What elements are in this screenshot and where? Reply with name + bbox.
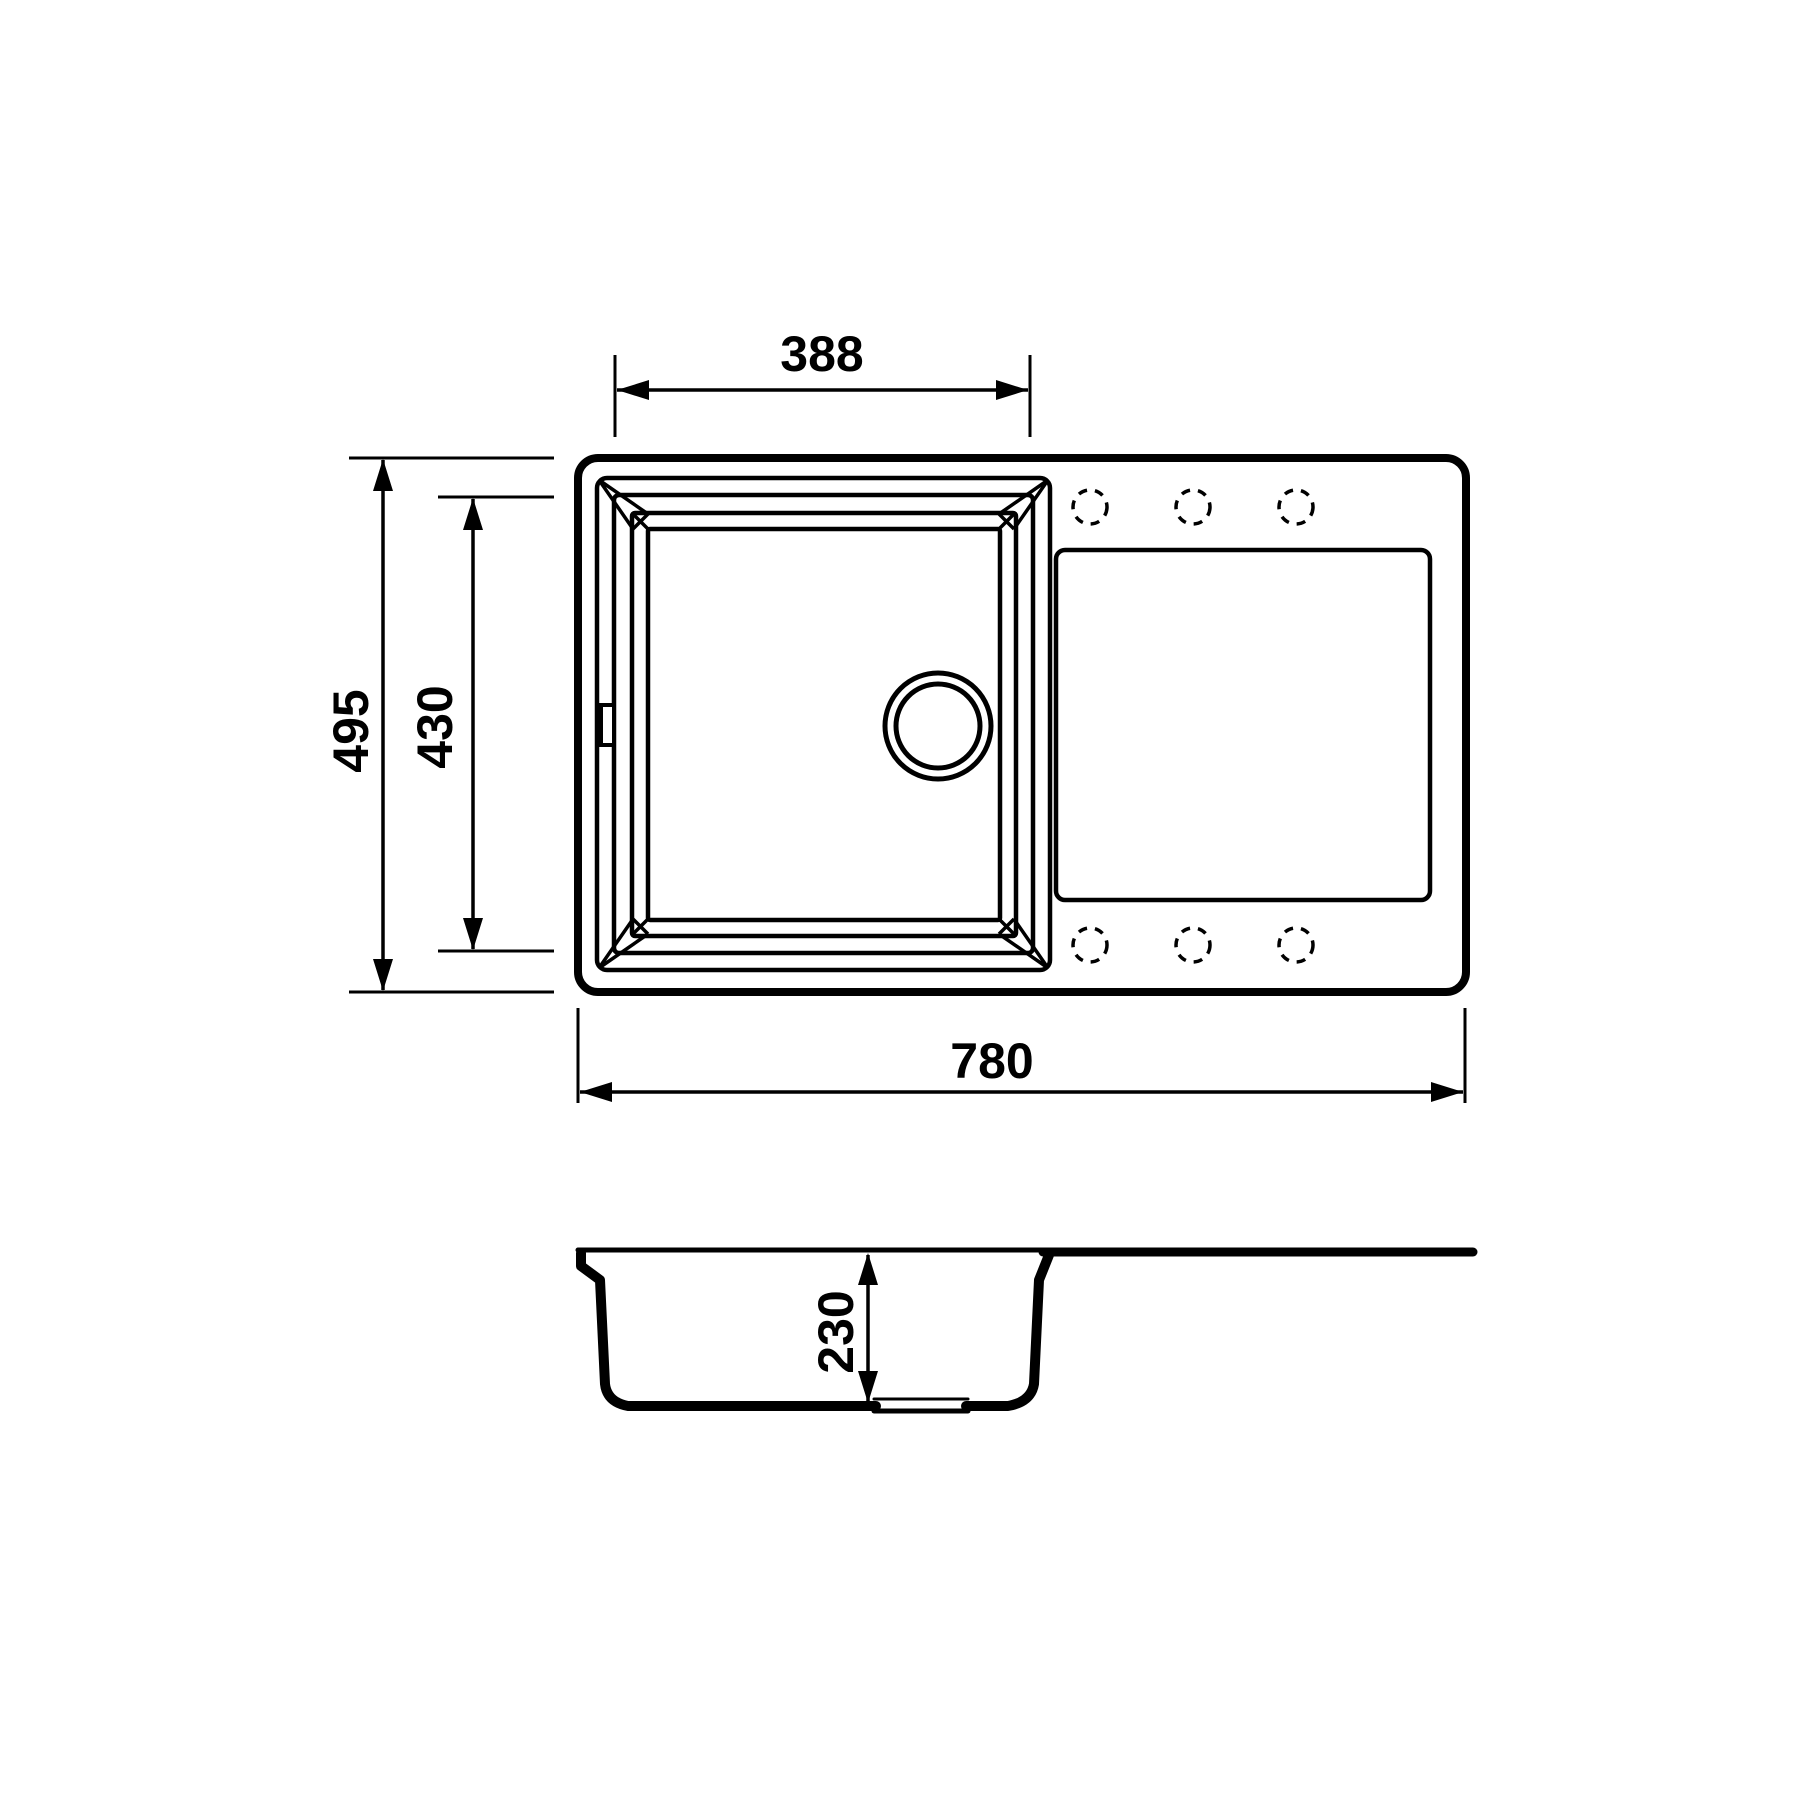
dimension-label-basin-depth: 430: [407, 685, 463, 768]
arrowhead: [617, 380, 649, 400]
arrowhead: [463, 918, 483, 950]
drainboard: [1056, 550, 1430, 900]
dimension-label-overall-depth: 495: [323, 689, 379, 772]
arrowhead: [373, 459, 393, 491]
section-view: 230: [578, 1250, 1473, 1411]
basin-rect-2: [614, 495, 1033, 953]
arrowhead: [996, 380, 1028, 400]
faucet-hole-marker: [1073, 928, 1107, 962]
drain-outer-circle: [885, 673, 991, 779]
arrowhead: [463, 498, 483, 530]
dimension-basin-depth: 430: [407, 497, 554, 951]
basin-rect-3: [632, 513, 1016, 936]
drawing-page: 388 495 430 780: [0, 0, 1800, 1800]
basin-rect-inner: [648, 529, 1000, 920]
arrowhead: [373, 959, 393, 991]
dimension-label-overall-width: 780: [950, 1033, 1033, 1089]
faucet-hole-marker: [1176, 928, 1210, 962]
dimension-basin-width: 388: [615, 326, 1030, 437]
arrowhead: [580, 1082, 612, 1102]
sink-technical-drawing: 388 495 430 780: [0, 0, 1800, 1800]
overflow-slot: [601, 705, 614, 745]
faucet-hole-marker: [1176, 490, 1210, 524]
faucet-hole-marker: [1279, 490, 1313, 524]
dimension-label-basin-width: 388: [780, 326, 863, 382]
top-view: [578, 458, 1466, 992]
faucet-hole-marker: [1279, 928, 1313, 962]
drain-inner-circle: [896, 684, 980, 768]
section-right-wall: [966, 1255, 1049, 1406]
faucet-holes: [1073, 490, 1313, 962]
sink-outline: [578, 458, 1466, 992]
dimension-label-basin-height: 230: [808, 1290, 864, 1373]
drain: [885, 673, 991, 779]
faucet-hole-marker: [1073, 490, 1107, 524]
dimension-basin-height: 230: [808, 1253, 878, 1403]
arrowhead: [1431, 1082, 1463, 1102]
dimension-overall-width: 780: [578, 1008, 1465, 1103]
arrowhead: [858, 1253, 878, 1285]
